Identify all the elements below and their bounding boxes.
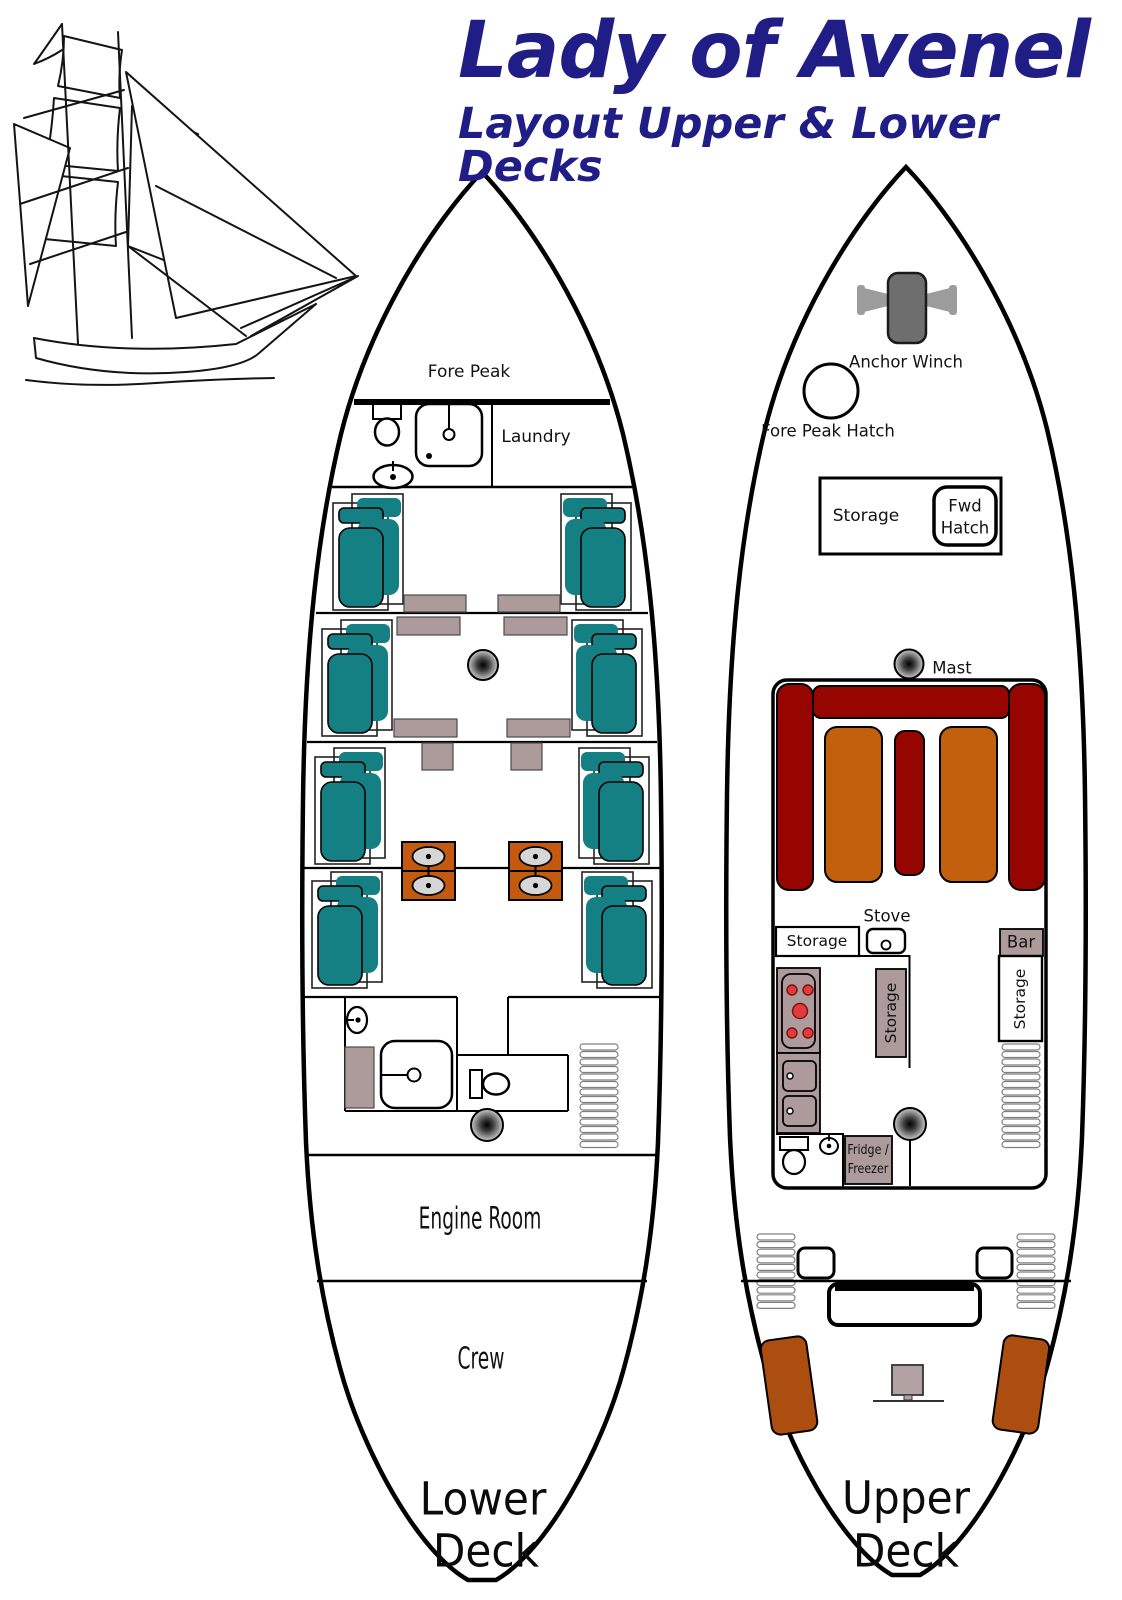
label-bar: Bar: [1007, 933, 1035, 952]
sink-icon: [346, 1007, 367, 1033]
upper-deck-plan: [726, 167, 1086, 1575]
label-fore-peak-hatch: Fore Peak Hatch: [761, 422, 895, 441]
label-stove: Stove: [864, 907, 911, 926]
cooker-icon: [777, 968, 820, 1053]
toilet-icon: [470, 1070, 509, 1098]
ship-sketch: [14, 24, 358, 385]
bunk: [322, 620, 392, 736]
room-label-crew: Crew: [458, 1342, 505, 1377]
bunk: [579, 748, 649, 864]
mast-icon: [894, 1108, 926, 1140]
label-fwd-hatch-1: Fwd: [948, 497, 981, 516]
room-label-engine-room: Engine Room: [419, 1202, 542, 1237]
stove-icon: [867, 929, 905, 953]
toilet-icon: [373, 404, 401, 446]
deck-hatch-icon: [798, 1248, 834, 1278]
mast-icon: [468, 650, 498, 680]
bunk: [572, 620, 642, 736]
label-storage-mid: Storage: [882, 983, 900, 1044]
fore-peak-hatch-icon: [804, 364, 858, 418]
label-storage-bar-side: Storage: [1011, 969, 1029, 1030]
label-storage-galley: Storage: [787, 932, 848, 950]
deck-name-lower-2: Deck: [433, 1525, 539, 1578]
saloon-table: [825, 727, 882, 882]
label-fridge-2: Freezer: [848, 1161, 889, 1177]
washstand-icon: [509, 842, 562, 900]
room-label-laundry: Laundry: [501, 427, 570, 447]
toilet-icon: [780, 1137, 808, 1174]
bunk: [315, 748, 385, 864]
bunk: [333, 494, 403, 610]
deck-name-lower-1: Lower: [420, 1473, 547, 1526]
page-title: Lady of Avenel: [458, 12, 1090, 90]
label-fridge-1: Fridge /: [847, 1142, 888, 1158]
label-anchor-winch: Anchor Winch: [849, 353, 963, 372]
room-label-fore-peak: Fore Peak: [428, 362, 510, 382]
page-subtitle: Layout Upper & Lower Decks: [458, 103, 1122, 189]
drawer-unit: [777, 1053, 820, 1133]
label-fwd-hatch-2: Hatch: [941, 519, 990, 538]
label-storage-forward: Storage: [833, 506, 900, 526]
label-mast: Mast: [932, 659, 971, 678]
washstand-icon: [402, 842, 455, 900]
saloon-table: [940, 727, 997, 882]
bunk: [312, 872, 382, 988]
mast-icon: [895, 650, 924, 679]
deck-name-upper-2: Deck: [853, 1525, 959, 1578]
bunk: [561, 494, 631, 610]
shower-icon: [381, 1041, 452, 1108]
deck-plan-page: Lady of Avenel Layout Upper & Lower Deck…: [0, 0, 1122, 1600]
deck-plan-canvas: [0, 0, 1122, 1600]
cabinet: [345, 1047, 374, 1108]
bunk: [582, 872, 652, 988]
deck-name-upper-1: Upper: [842, 1472, 970, 1525]
shower-icon: [416, 404, 482, 466]
mast-icon: [471, 1109, 503, 1141]
deck-hatch-icon: [977, 1248, 1012, 1278]
